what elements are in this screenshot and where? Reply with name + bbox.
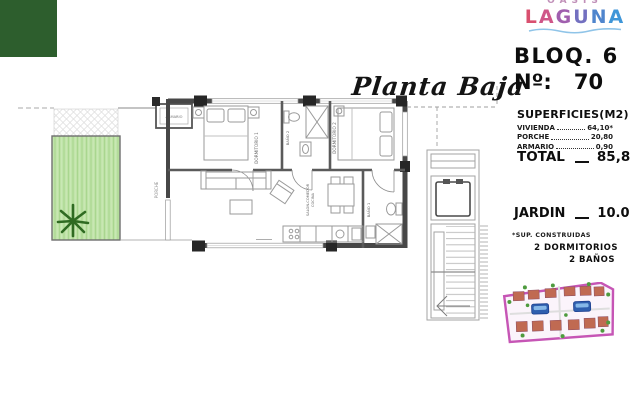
room-label-cocina: COCINA	[311, 192, 315, 207]
unit-number-row: Nº:70	[514, 70, 603, 94]
plan-title: Planta Baja	[350, 72, 503, 101]
feature-bedrooms: 2 DORMITORIOS	[500, 243, 618, 253]
floorplan-page: ARMARIO	[0, 0, 630, 401]
surface-row-porche: PORCHE 20,80	[517, 132, 613, 142]
unit-walls	[166, 96, 410, 252]
room-label-porche: PORCHE	[154, 181, 159, 198]
total-underscore	[575, 161, 589, 163]
dormitorio1-furniture	[193, 106, 259, 160]
total-row: TOTAL 85,80	[517, 149, 615, 165]
brand-laguna: LAGUNA	[522, 8, 628, 27]
dormitorio2-furniture	[334, 106, 394, 160]
stair-block	[427, 150, 488, 320]
surfaces-table: VIVIENDA 64,10* PORCHE 20,80 ARMARIO 0,9…	[517, 122, 613, 151]
room-label-dormitorio1: DORMITORIO 1	[254, 132, 259, 164]
room-label-bano1: BAÑO 1	[366, 202, 371, 217]
room-label-dormitorio2: DORMITORIO 2	[332, 122, 337, 154]
block-number: BLOQ. 6	[514, 44, 619, 68]
surface-row-vivienda: VIVIENDA 64,10*	[517, 122, 613, 132]
dotted-leader	[557, 129, 585, 130]
site-plan-thumbnail	[502, 282, 630, 354]
unit-number-label: Nº:	[514, 70, 552, 94]
bano2-fixtures	[284, 106, 328, 156]
room-label-bano2: BAÑO 2	[285, 130, 290, 145]
jardin-label: JARDIN	[514, 206, 565, 221]
brand-wave-icon	[527, 27, 623, 34]
jardin-underscore	[575, 217, 589, 219]
total-value: 85,80	[597, 149, 630, 165]
total-label: TOTAL	[517, 149, 565, 165]
room-label-salon: SALON-COMEDOR	[306, 183, 310, 216]
surfaces-heading: SUPERFICIES(M2)	[517, 108, 629, 121]
feature-bathrooms: 2 BAÑOS	[500, 255, 615, 265]
construidas-footnote: *SUP. CONSTRUIDAS	[512, 232, 591, 239]
bano1-fixtures	[366, 203, 402, 244]
jardin-row: JARDIN 10.00	[514, 206, 618, 221]
jardin-value: 10.00	[597, 206, 630, 221]
salon-furniture	[201, 171, 363, 242]
unit-number: 70	[574, 70, 603, 94]
dotted-leader	[551, 139, 589, 140]
brand-logo: OASIS LAGUNA	[522, 0, 628, 34]
info-panel: OASIS LAGUNA BLOQ. 6 Nº:70 SUPERFICIES(M…	[500, 0, 630, 401]
